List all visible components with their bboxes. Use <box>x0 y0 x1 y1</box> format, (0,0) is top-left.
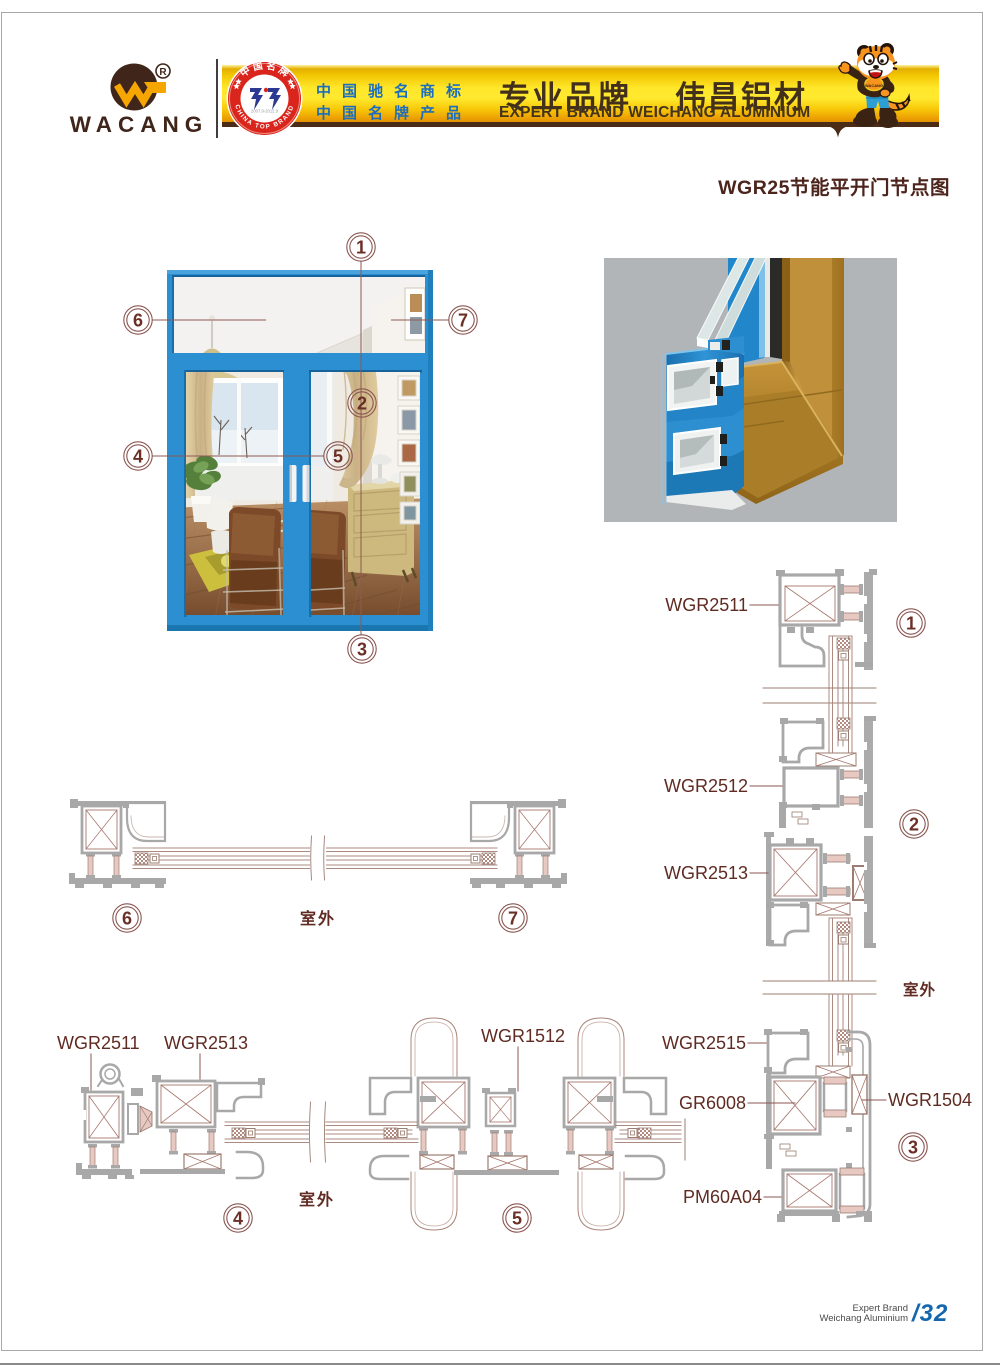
svg-text:WGR2513: WGR2513 <box>164 1033 248 1053</box>
svg-text:WGR1512: WGR1512 <box>481 1026 565 1046</box>
svg-text:3: 3 <box>908 1138 918 1158</box>
svg-text:7: 7 <box>458 311 468 331</box>
svg-text:5: 5 <box>333 447 343 467</box>
svg-text:室外: 室外 <box>299 1190 335 1209</box>
svg-text:4: 4 <box>233 1209 243 1229</box>
svg-text:室外: 室外 <box>903 980 936 999</box>
svg-text:WGR2511: WGR2511 <box>57 1033 140 1053</box>
svg-text:6: 6 <box>133 311 143 331</box>
svg-text:6: 6 <box>122 909 132 929</box>
svg-text:1: 1 <box>906 614 916 634</box>
svg-text:3: 3 <box>357 640 367 660</box>
svg-text:WGR2512: WGR2512 <box>664 776 748 796</box>
svg-text:5: 5 <box>512 1209 522 1229</box>
svg-text:WGR1504: WGR1504 <box>888 1090 972 1110</box>
svg-text:WGR2513: WGR2513 <box>664 863 748 883</box>
svg-text:7: 7 <box>508 909 518 929</box>
svg-text:2: 2 <box>357 394 367 414</box>
svg-text:1: 1 <box>356 238 366 258</box>
svg-text:4: 4 <box>133 447 143 467</box>
svg-text:室外: 室外 <box>300 909 336 928</box>
svg-text:WGR2511: WGR2511 <box>665 595 748 615</box>
svg-text:2: 2 <box>909 815 919 835</box>
